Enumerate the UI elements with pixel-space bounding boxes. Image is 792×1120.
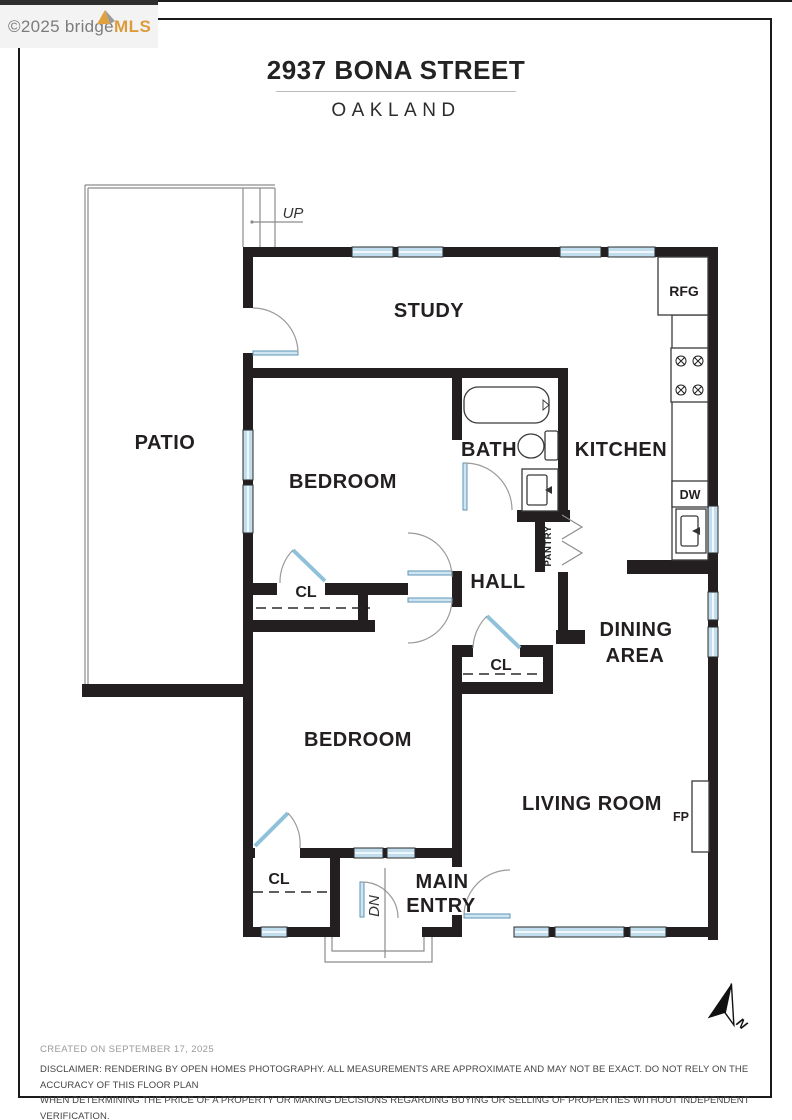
title-block: 2937 BONA STREET OAKLAND [0, 55, 792, 122]
floorplan-page: ©2025 bridgeMLS 2937 BONA STREET OAKLAND [0, 0, 792, 1120]
window [352, 247, 393, 257]
label-hall: HALL [470, 571, 525, 593]
label-dining-2: AREA [606, 645, 665, 667]
window [261, 927, 287, 937]
mls-watermark: ©2025 bridgeMLS [0, 0, 158, 48]
label-dining-1: DINING [600, 619, 673, 641]
label-living-room: LIVING ROOM [522, 793, 662, 815]
pantry-bifold-door [562, 515, 582, 565]
label-bedroom-lower: BEDROOM [304, 729, 412, 751]
label-closet-bedroom1: CL [295, 584, 317, 601]
window [608, 247, 655, 257]
label-closet-bedroom2: CL [268, 871, 290, 888]
bath-sink-vanity [522, 469, 558, 511]
hall-closet-door [473, 616, 520, 648]
bedroom2-closet-door [255, 813, 300, 848]
floorplan-drawing: STUDY PATIO BEDROOM BATH KITCHEN HALL DI… [0, 0, 792, 1120]
label-bedroom-upper: BEDROOM [289, 471, 397, 493]
kitchen-sink [676, 509, 706, 553]
window [630, 927, 666, 937]
fireplace-box [692, 781, 709, 852]
bath-door [463, 463, 512, 510]
window [708, 506, 718, 553]
window [243, 485, 253, 533]
footer-block: CREATED ON SEPTEMBER 17, 2025 DISCLAIMER… [40, 1044, 752, 1120]
window [387, 848, 415, 858]
page-title: 2937 BONA STREET [0, 55, 792, 86]
label-patio: PATIO [135, 432, 196, 454]
label-pantry: PANTRY [543, 525, 554, 566]
label-stairs-up: UP [283, 205, 304, 222]
label-kitchen: KITCHEN [575, 439, 667, 461]
bathtub [464, 387, 549, 423]
walls [82, 247, 718, 940]
window [398, 247, 443, 257]
north-arrow: N [707, 980, 750, 1032]
window [560, 247, 601, 257]
window [354, 848, 383, 858]
created-date: CREATED ON SEPTEMBER 17, 2025 [40, 1044, 752, 1055]
label-main-entry-2: ENTRY [406, 895, 476, 917]
label-dishwasher: DW [680, 488, 701, 502]
stove [671, 348, 708, 402]
disclaimer-line-1: DISCLAIMER: RENDERING BY OPEN HOMES PHOT… [40, 1062, 752, 1093]
window [243, 430, 253, 480]
toilet [518, 431, 558, 460]
label-closet-hall: CL [490, 657, 512, 674]
label-north: N [733, 1015, 750, 1033]
room-labels: STUDY PATIO BEDROOM BATH KITCHEN HALL DI… [135, 205, 701, 917]
label-bath: BATH [461, 439, 517, 461]
fixtures [464, 257, 709, 852]
label-refrigerator: RFG [669, 283, 699, 299]
bridge-pyramid-icon [93, 8, 119, 25]
watermark-brand: MLS [114, 17, 151, 37]
label-study: STUDY [394, 300, 464, 322]
window [514, 927, 549, 937]
label-main-entry-1: MAIN [415, 871, 468, 893]
bedroom2-door [408, 598, 452, 643]
disclaimer-line-2: WHEN DETERMINING THE PRICE OF A PROPERTY… [40, 1093, 752, 1120]
label-stairs-down: DN [366, 895, 383, 917]
page-subtitle: OAKLAND [0, 100, 792, 122]
window [555, 927, 624, 937]
study-patio-door [253, 308, 298, 355]
window [708, 592, 718, 620]
window [708, 627, 718, 657]
bedroom1-closet-door [280, 550, 325, 583]
title-divider [276, 91, 516, 92]
bedroom1-door [408, 533, 452, 577]
label-fireplace: FP [673, 810, 689, 824]
